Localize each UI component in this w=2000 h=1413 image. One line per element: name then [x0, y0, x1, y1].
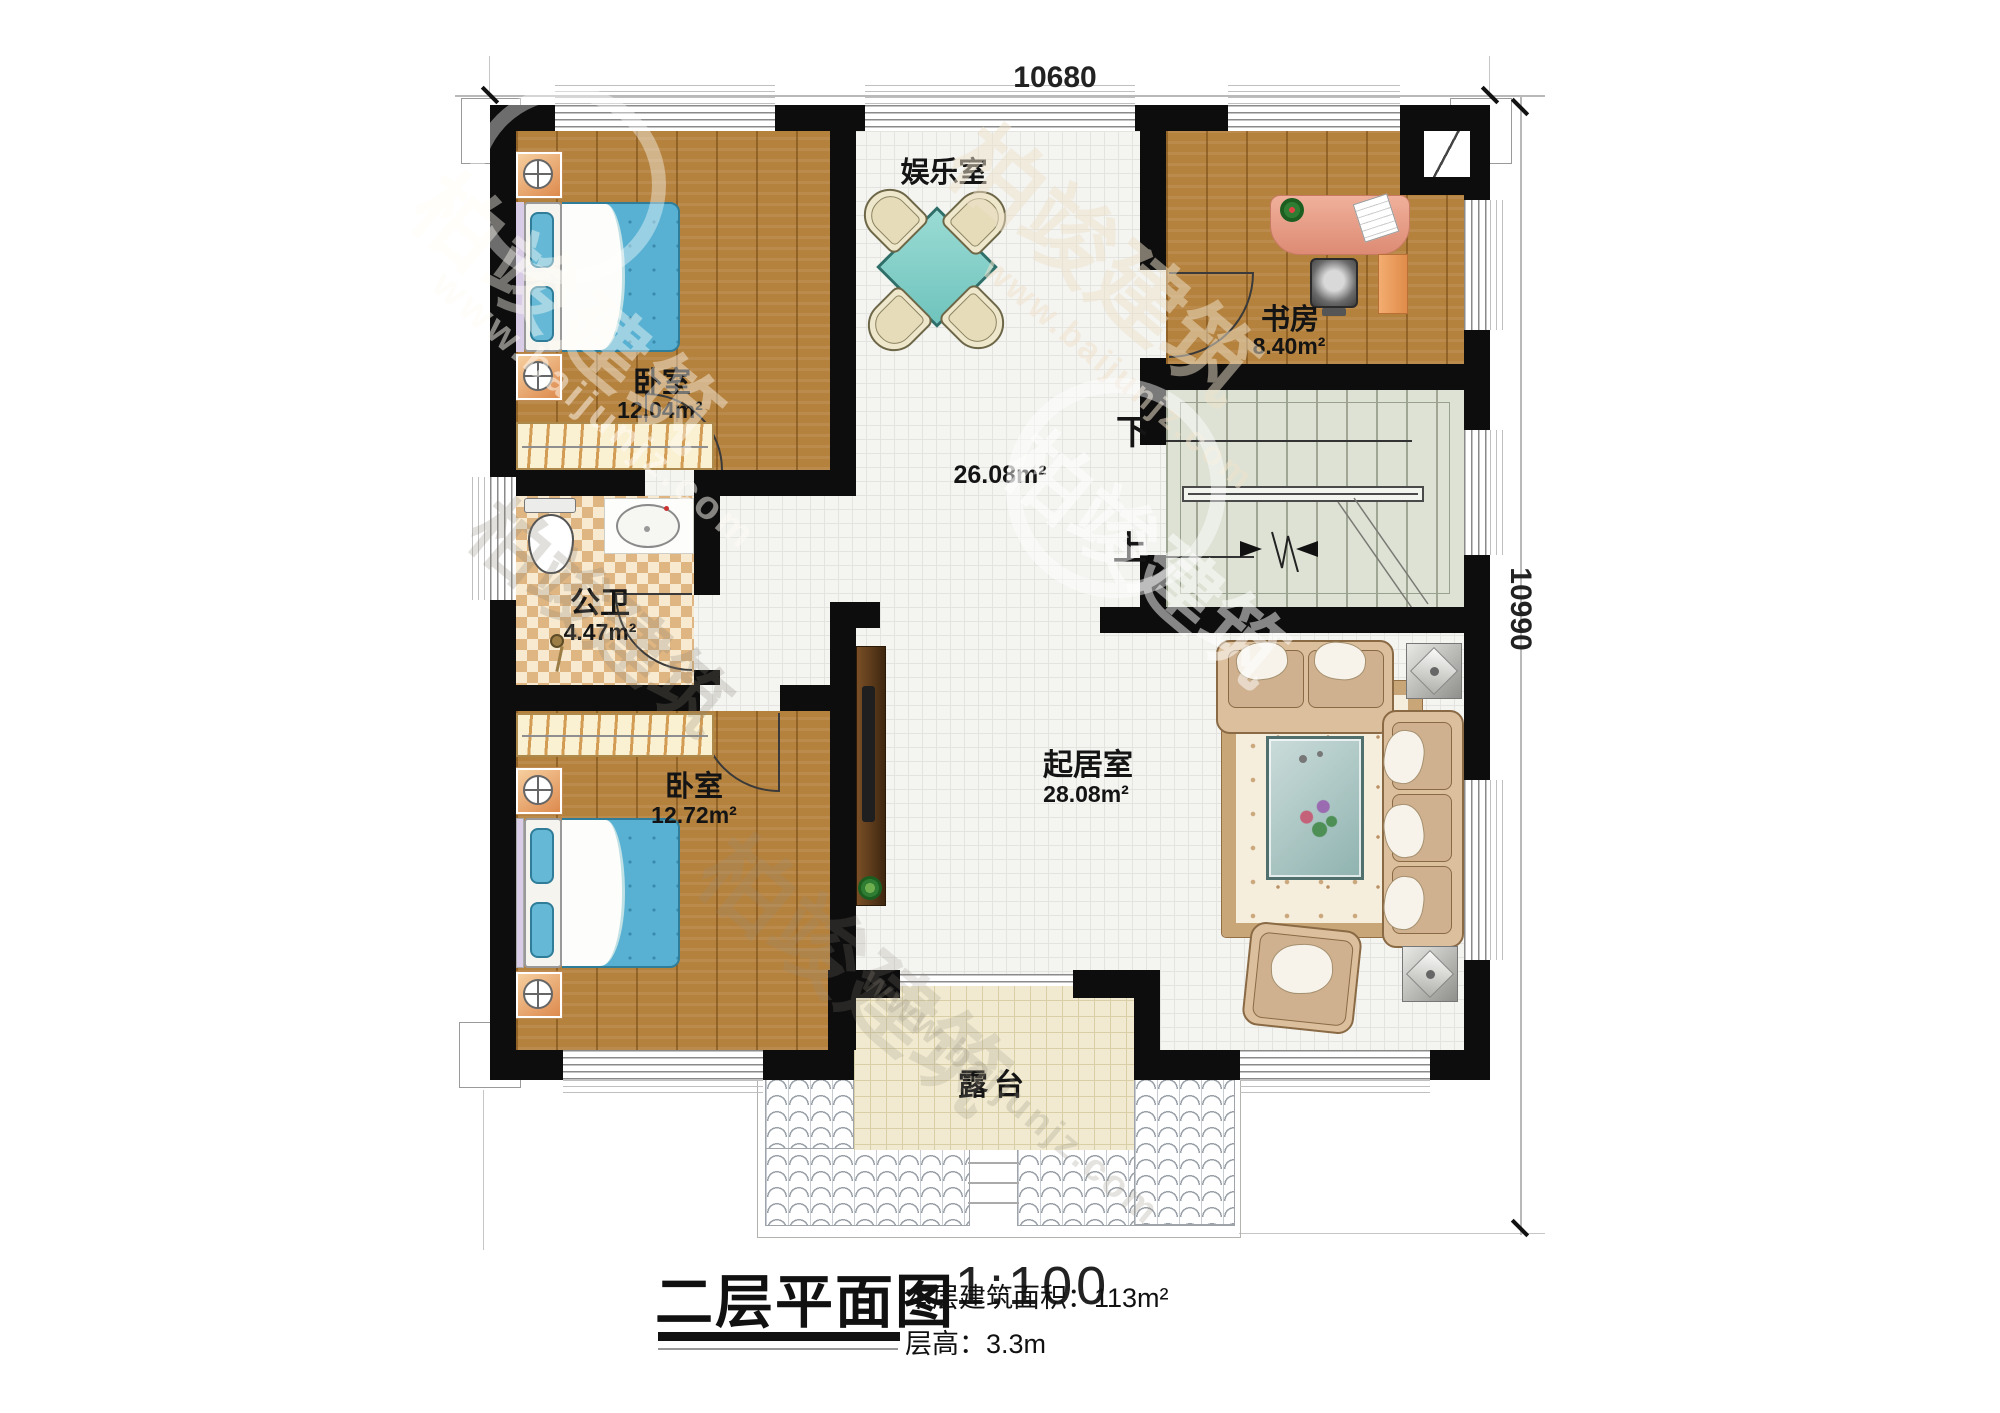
- room-label-living: 起居室: [1043, 750, 1133, 782]
- faucet-icon: [664, 506, 669, 511]
- title-underline-bar: [658, 1332, 900, 1341]
- window: [1464, 780, 1490, 960]
- lamp-dot: [1430, 667, 1439, 676]
- room-label-terrace: 露台: [958, 1070, 1030, 1102]
- window-sill: [472, 477, 490, 600]
- bathroom-area-label: 4.47m²: [564, 620, 637, 644]
- wall-segment: [1100, 607, 1464, 633]
- wall-segment: [490, 1050, 563, 1080]
- sink-drain: [644, 526, 650, 532]
- title-underline-thin: [658, 1348, 898, 1350]
- wall-segment: [1135, 105, 1228, 131]
- sofa-three-seat: [1382, 710, 1464, 948]
- lamp-dot: [1426, 970, 1435, 979]
- porch-step-line: [968, 1202, 1019, 1204]
- room-label-bedroom-top: 卧室: [633, 368, 691, 398]
- pillow: [530, 212, 554, 268]
- nightstand: [516, 972, 562, 1018]
- wall-segment: [1140, 364, 1464, 390]
- monitor-stand: [1322, 308, 1346, 316]
- computer-monitor-icon: [1310, 258, 1358, 308]
- stairs-down-label: 下: [1116, 416, 1150, 452]
- room-label-entertainment: 娱乐室: [900, 158, 987, 188]
- terrace-floor: [854, 984, 1134, 1150]
- wall-segment: [720, 470, 856, 496]
- sofa-two-seat: [1216, 640, 1394, 734]
- toilet-tank: [524, 498, 576, 513]
- wall-segment: [1140, 131, 1166, 270]
- stairs-diagonal-rail: [1332, 492, 1436, 612]
- lamp-icon: [523, 159, 553, 189]
- side-table: [1406, 643, 1462, 699]
- pillow: [530, 828, 554, 884]
- wall-segment: [490, 600, 516, 1080]
- side-cabinet: [1378, 254, 1408, 314]
- window-sill: [1490, 430, 1508, 555]
- quilt: [562, 820, 625, 966]
- direction-arrow-icon: [1240, 541, 1262, 557]
- plant-icon: [1280, 198, 1304, 222]
- window: [490, 477, 516, 600]
- wall-segment: [1160, 1050, 1240, 1080]
- nightstand: [516, 768, 562, 814]
- window-sill: [1490, 200, 1508, 330]
- window-sill: [1240, 1080, 1430, 1098]
- room-label-study: 书房: [1261, 305, 1319, 335]
- sliding-door: [900, 974, 1073, 986]
- floor-plan-canvas: 10680 10990: [0, 0, 2000, 1413]
- bed: [516, 818, 680, 968]
- window-sill: [563, 1080, 763, 1098]
- porch-step-line: [968, 1162, 1019, 1164]
- flower-decor: [1291, 783, 1343, 845]
- pillow: [530, 286, 554, 342]
- window-sill: [1490, 780, 1508, 960]
- bedroom-bottom-area-label: 12.72m²: [651, 803, 737, 827]
- lamp-icon: [523, 775, 553, 805]
- plant-icon: [858, 876, 882, 900]
- armchair: [1241, 920, 1363, 1035]
- extension-line: [483, 1090, 484, 1250]
- stairs-break-line: [1268, 528, 1302, 572]
- window: [865, 105, 1135, 131]
- top-dimension-value: 10680: [1013, 62, 1096, 94]
- wall-segment: [490, 685, 700, 711]
- wall-segment: [830, 131, 856, 496]
- window: [563, 1050, 763, 1080]
- porch-step-line: [968, 1182, 1019, 1184]
- window: [555, 105, 775, 131]
- window: [1228, 105, 1400, 131]
- sofa-pillow: [1270, 943, 1334, 995]
- floor-area-text: 本层建筑面积：113m²: [905, 1276, 1169, 1315]
- headboard: [516, 818, 524, 968]
- wall-segment: [775, 105, 865, 131]
- wall-segment: [763, 1050, 830, 1080]
- wardrobe: [516, 713, 714, 757]
- window: [1464, 200, 1490, 330]
- room-label-bedroom-bottom: 卧室: [665, 772, 723, 802]
- wall-segment: [1134, 970, 1160, 1080]
- lamp-icon: [523, 979, 553, 1009]
- wall-segment: [830, 602, 880, 628]
- table-dot: [1317, 751, 1323, 757]
- wall-segment: [1430, 1050, 1490, 1080]
- wall-segment: [830, 602, 856, 1050]
- roof-eave-right: [1134, 1072, 1235, 1225]
- tv-icon: [862, 686, 875, 822]
- headboard: [516, 202, 524, 352]
- window: [1464, 430, 1490, 555]
- window: [1240, 1050, 1430, 1080]
- table-dot: [1299, 755, 1307, 763]
- right-dimension-value: 10990: [1503, 549, 1537, 669]
- bed: [516, 202, 680, 352]
- wardrobe: [516, 422, 714, 470]
- quilt: [562, 204, 625, 350]
- living-area-label: 28.08m²: [1043, 782, 1129, 806]
- wall-segment: [694, 670, 720, 685]
- window-sill: [1228, 85, 1400, 105]
- roof-eave-bottom-left: [765, 1148, 970, 1226]
- wall-segment: [694, 470, 720, 595]
- flue-shaft: [1424, 131, 1470, 177]
- stairs-up-label: 上: [1113, 532, 1147, 568]
- window-sill: [555, 85, 775, 105]
- lamp-icon: [523, 361, 553, 391]
- coffee-table: [1266, 736, 1364, 880]
- floor-height-text: 层高：3.3m: [905, 1322, 1046, 1361]
- study-area-label: 8.40m²: [1253, 334, 1326, 358]
- side-table: [1402, 946, 1458, 1002]
- extension-line: [1239, 1233, 1545, 1234]
- pillow: [530, 902, 554, 958]
- nightstand: [516, 152, 562, 198]
- hall-area-label: 26.08m²: [953, 462, 1046, 488]
- door-arc-study: [1168, 272, 1254, 358]
- wall-segment: [1464, 330, 1490, 430]
- stairs-down-leader: [1150, 440, 1412, 442]
- bedroom-top-area-label: 12.04m²: [617, 398, 703, 422]
- wall-segment: [1464, 555, 1490, 780]
- wall-segment: [490, 105, 516, 477]
- room-label-bathroom: 公卫: [570, 588, 630, 620]
- nightstand: [516, 354, 562, 400]
